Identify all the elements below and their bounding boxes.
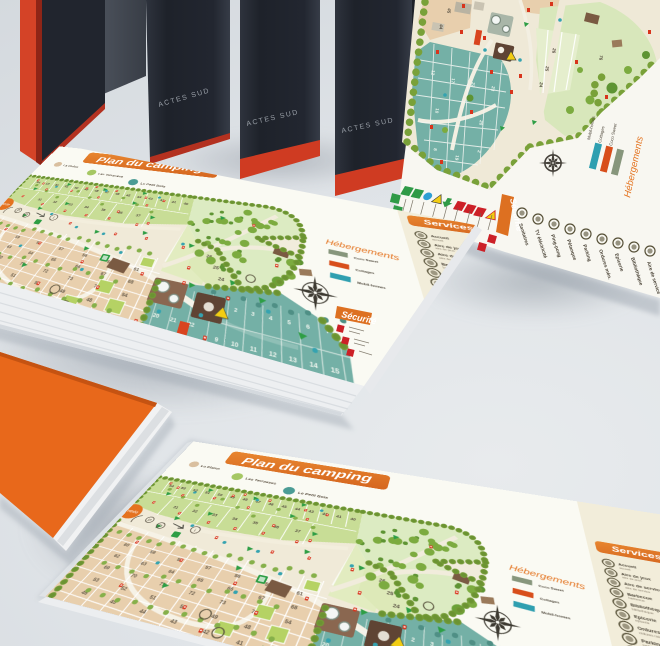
svg-text:Sécurité: Sécurité — [341, 309, 378, 326]
